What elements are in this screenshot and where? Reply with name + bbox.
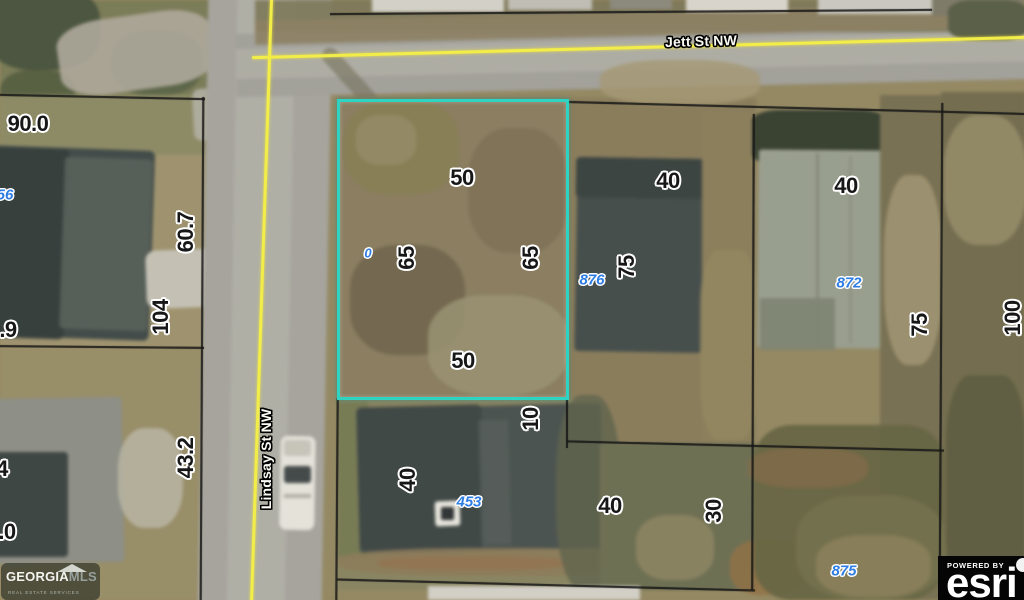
dim-43-2: 43.2 (175, 438, 197, 479)
dim-40-mid: 40 (598, 495, 621, 517)
street-label-lindsay: Lindsay St NW (259, 409, 273, 510)
georgiamls-brand-georgia: GEORGIA (6, 569, 69, 584)
dim-40-876: 40 (656, 170, 679, 192)
parcel-id-56: 56 (0, 188, 13, 203)
dim-30: 30 (703, 499, 725, 522)
georgiamls-brand: GEORGIAMLS (6, 570, 97, 583)
georgiamls-tagline: REAL ESTATE SERVICES (8, 590, 80, 595)
dim-104: 104 (150, 299, 172, 334)
dim-40-872: 40 (834, 175, 857, 197)
georgiamls-brand-mls: MLS (69, 569, 97, 584)
street-label-jett: Jett St NW (665, 33, 737, 49)
map-labels: Jett St NWLindsay St NW90.05660.7104.943… (0, 0, 1024, 600)
dim-75-right: 75 (909, 313, 931, 336)
esri-watermark: POWERED BY esri (938, 556, 1024, 600)
dim-100: 100 (1002, 300, 1024, 335)
parcel-id-0: 0 (364, 247, 371, 260)
parcel-map[interactable]: Jett St NWLindsay St NW90.05660.7104.943… (0, 0, 1024, 600)
parcel-id-876: 876 (579, 273, 604, 288)
dim-65-left: 65 (396, 246, 418, 269)
dim-90-0: 90.0 (8, 113, 49, 135)
esri-globe-icon (1016, 558, 1024, 572)
dim-60-7: 60.7 (175, 212, 197, 253)
parcel-id-872: 872 (836, 276, 861, 291)
dim-50-bottom: 50 (451, 350, 474, 372)
dim-4: 4 (0, 458, 8, 480)
dim-dot-0: .0 (0, 521, 16, 543)
dim-50-top: 50 (450, 167, 473, 189)
georgiamls-watermark: GEORGIAMLS REAL ESTATE SERVICES (1, 563, 100, 600)
dim-dot-9: .9 (0, 319, 17, 341)
dim-10: 10 (520, 407, 542, 430)
parcel-id-875: 875 (831, 564, 856, 579)
dim-65-right: 65 (520, 246, 542, 269)
dim-40-453: 40 (397, 468, 419, 491)
parcel-id-453: 453 (456, 495, 481, 510)
esri-brand: esri (946, 562, 1017, 600)
dim-75-876: 75 (616, 255, 638, 278)
